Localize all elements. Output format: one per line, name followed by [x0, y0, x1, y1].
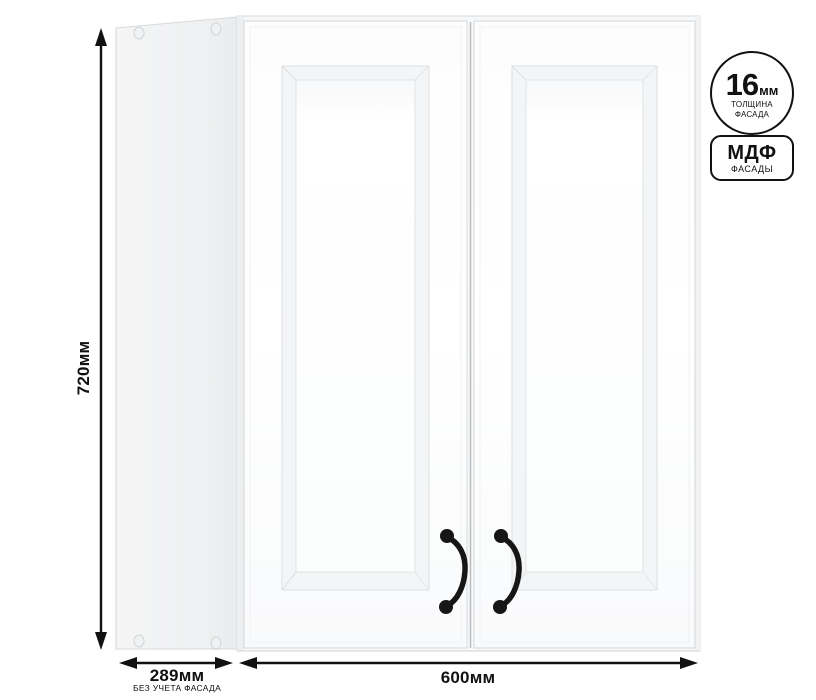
product-dimension-diagram: 720мм 289мм БЕЗ УЧЕТА ФАСАДА 600мм 16 мм…	[0, 0, 816, 700]
left-door-raised-panel	[296, 80, 415, 572]
right-door-raised-panel	[526, 80, 643, 572]
thickness-badge: 16 мм ТОЛЩИНА ФАСАДА	[710, 51, 794, 135]
screw-cap-icon	[134, 635, 144, 647]
cabinet-drawing	[0, 0, 816, 700]
material-title: МДФ	[727, 143, 776, 164]
thickness-value: 16	[726, 69, 758, 100]
height-dimension-arrow	[95, 28, 107, 650]
left-door	[244, 21, 467, 648]
material-badge: МДФ ФАСАДЫ	[710, 135, 794, 181]
right-door	[474, 21, 695, 648]
screw-cap-icon	[211, 637, 221, 649]
cabinet-side-panel	[116, 17, 237, 649]
screw-cap-icon	[134, 27, 144, 39]
depth-dimension-note: БЕЗ УЧЕТА ФАСАДА	[107, 683, 247, 693]
material-subtitle: ФАСАДЫ	[731, 164, 773, 174]
width-dimension-label: 600мм	[408, 668, 528, 688]
thickness-value-row: 16 мм	[726, 69, 779, 100]
thickness-unit: мм	[759, 84, 778, 97]
screw-cap-icon	[211, 23, 221, 35]
thickness-caption-line1: ТОЛЩИНА	[731, 100, 773, 110]
thickness-caption-line2: ФАСАДА	[735, 110, 769, 120]
height-dimension-label: 720мм	[74, 318, 94, 418]
